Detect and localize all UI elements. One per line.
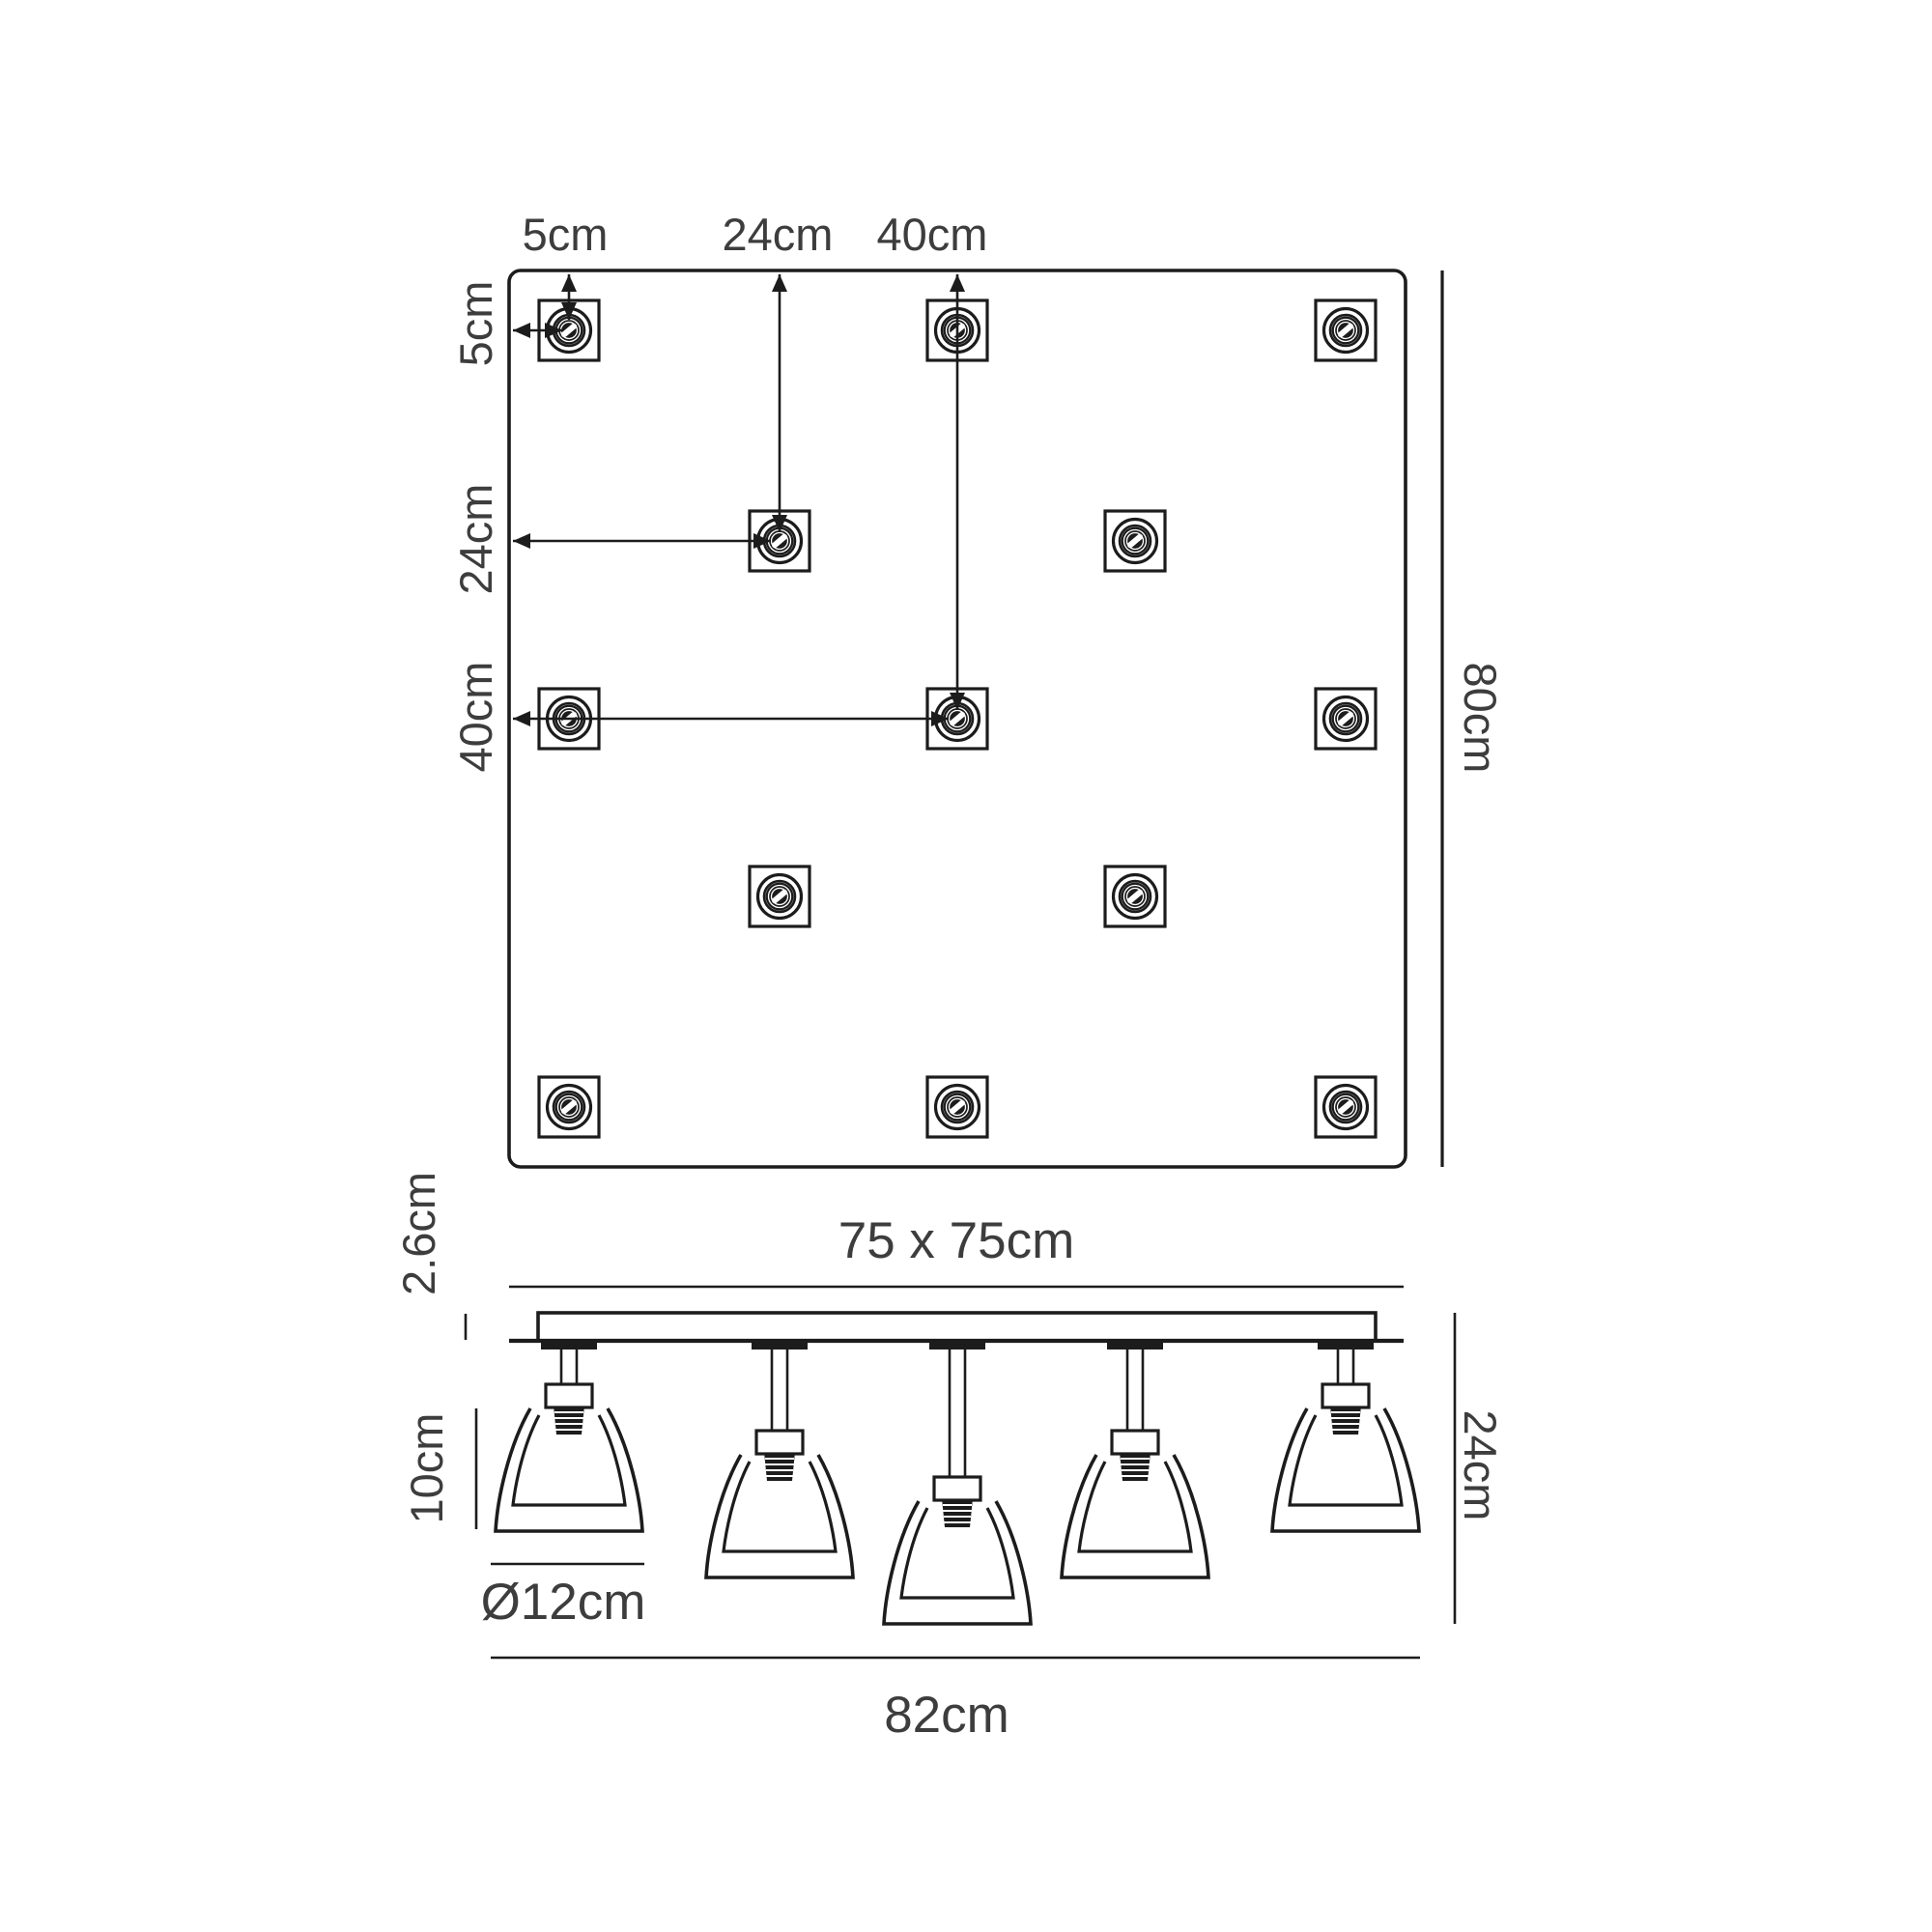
light-fixture-dimension-diagram: 5cm 24cm 40cm 5cm 24cm 40cm 80cm 75 x 75… [0, 0, 1932, 1932]
label-left-5cm: 5cm [450, 281, 501, 367]
label-fixture-height: 24cm [1455, 1410, 1506, 1521]
plan-view: 5cm 24cm 40cm 5cm 24cm 40cm 80cm [450, 209, 1506, 1167]
mounting-pad [752, 1343, 808, 1350]
mounting-point [1316, 689, 1376, 749]
label-plate-size: 75 x 75cm [838, 1212, 1075, 1269]
label-left-40cm: 40cm [450, 662, 501, 773]
lamp-socket [1322, 1384, 1369, 1407]
mounting-point [1316, 1077, 1376, 1137]
mounting-pad [1318, 1343, 1374, 1350]
light-3 [884, 1350, 1031, 1624]
light-4 [1062, 1350, 1208, 1577]
label-top-24cm: 24cm [723, 209, 834, 260]
side-view: 75 x 75cm [393, 1172, 1506, 1744]
lamp-stem [1338, 1350, 1353, 1384]
label-left-24cm: 24cm [450, 484, 501, 595]
mounting-point [1316, 300, 1376, 360]
label-fixture-width: 82cm [884, 1687, 1009, 1744]
mounting-pad [929, 1343, 985, 1350]
lamp-socket [1112, 1431, 1158, 1454]
mounting-pads [541, 1343, 1374, 1350]
dimension-diagram-page: 5cm 24cm 40cm 5cm 24cm 40cm 80cm 75 x 75… [0, 0, 1932, 1932]
mounting-point [1105, 867, 1165, 926]
label-plate-thickness: 2.6cm [393, 1172, 444, 1295]
lamp-stem [1127, 1350, 1143, 1431]
label-shade-height: 10cm [401, 1413, 452, 1524]
mounting-point [1105, 511, 1165, 571]
mounting-point [750, 867, 810, 926]
mounting-pad [541, 1343, 597, 1350]
mounting-point [539, 1077, 599, 1137]
lamp-stem [772, 1350, 787, 1431]
light-5 [1272, 1350, 1419, 1531]
mounting-point [927, 1077, 987, 1137]
lamp-socket [546, 1384, 592, 1407]
light-1 [496, 1350, 642, 1531]
lamp-socket [756, 1431, 803, 1454]
mounting-pad [1107, 1343, 1163, 1350]
label-top-5cm: 5cm [523, 209, 609, 260]
lamp-stem [561, 1350, 577, 1384]
canopy-bar [538, 1313, 1376, 1341]
light-2 [706, 1350, 853, 1577]
label-shade-diameter: Ø12cm [481, 1574, 646, 1631]
lamp-stem [950, 1350, 965, 1477]
lamp-socket [934, 1477, 980, 1500]
label-top-40cm: 40cm [877, 209, 988, 260]
label-right-80cm: 80cm [1455, 663, 1506, 774]
